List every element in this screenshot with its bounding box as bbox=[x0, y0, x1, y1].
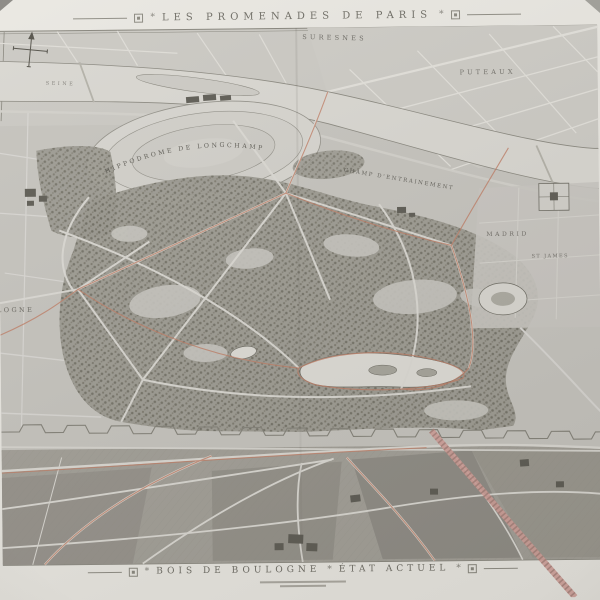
label-puteaux: PUTEAUX bbox=[460, 68, 516, 77]
photo-corner-shadow bbox=[0, 0, 13, 11]
map-title: BOIS DE BOULOGNE bbox=[156, 565, 320, 577]
map-sheet: * LES PROMENADES DE PARIS * bbox=[0, 0, 600, 600]
ornament-square-icon bbox=[468, 564, 477, 573]
imprint-line bbox=[260, 581, 346, 584]
title-separator: * bbox=[456, 563, 461, 573]
ornament-square-icon bbox=[129, 567, 138, 576]
label-suresnes: SURESNES bbox=[302, 33, 367, 43]
map-subtitle: ÉTAT ACTUEL bbox=[339, 563, 450, 574]
label-boulogne: BOULOGNE bbox=[0, 306, 34, 315]
label-madrid: MADRID bbox=[486, 231, 529, 238]
map-photo: * LES PROMENADES DE PARIS * bbox=[0, 0, 600, 600]
title-rule-left bbox=[88, 571, 122, 572]
title-separator: * bbox=[327, 565, 332, 575]
grandstand bbox=[186, 96, 199, 103]
title-rule-right bbox=[484, 567, 518, 568]
photo-corner-shadow bbox=[585, 0, 600, 13]
map-content: * LES PROMENADES DE PARIS * bbox=[0, 0, 600, 600]
title-separator: * bbox=[145, 567, 150, 577]
garden-parterre bbox=[539, 183, 569, 210]
label-seine: SEINE bbox=[46, 81, 76, 88]
label-st-james: ST JAMES bbox=[532, 253, 569, 259]
